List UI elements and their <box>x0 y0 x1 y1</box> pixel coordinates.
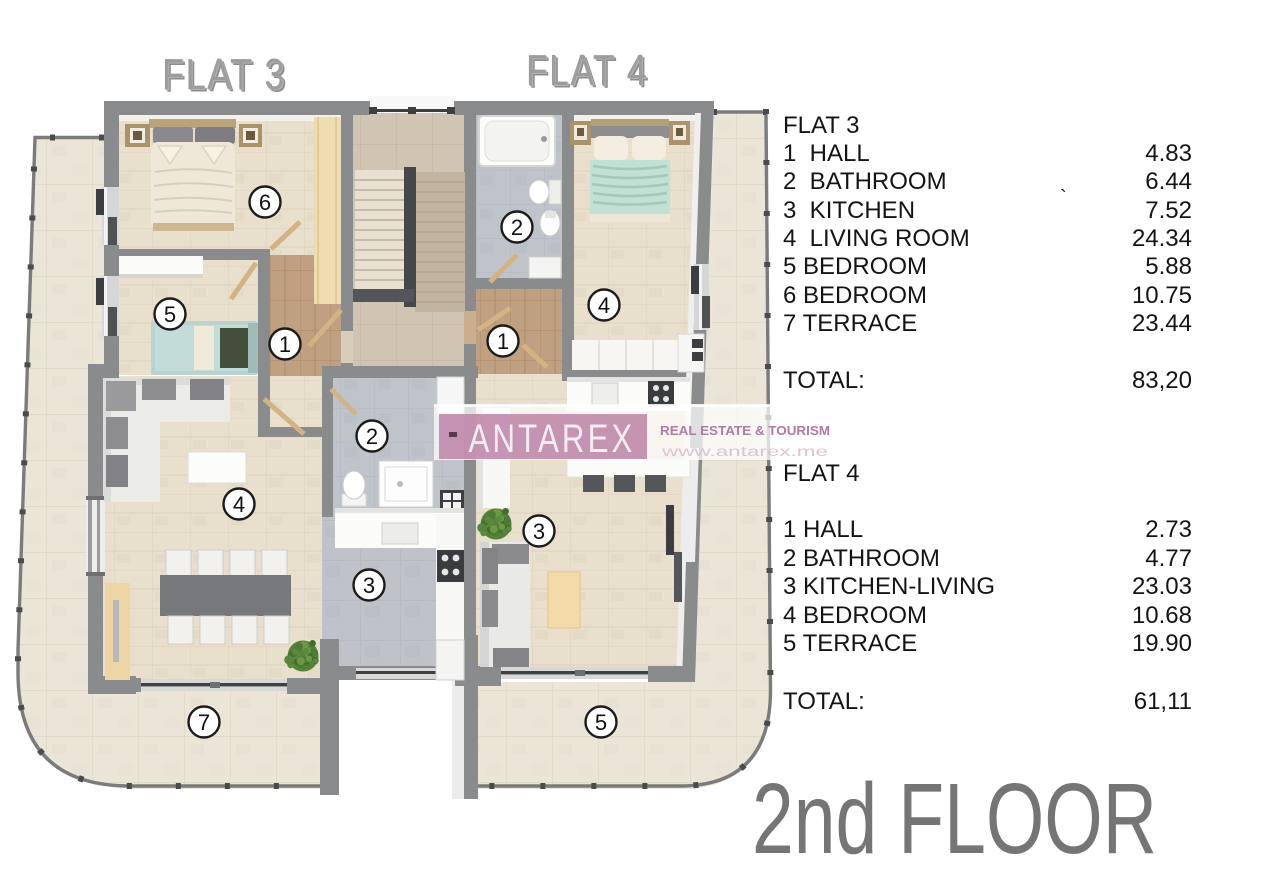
svg-text:23.44: 23.44 <box>1132 310 1192 337</box>
svg-text:4: 4 <box>598 293 610 318</box>
svg-text:`: ` <box>1060 187 1067 209</box>
svg-text:FLAT 4: FLAT 4 <box>526 46 648 95</box>
svg-text:TOTAL:: TOTAL: <box>783 688 865 715</box>
svg-text:2: 2 <box>366 424 378 449</box>
svg-text:4: 4 <box>233 492 245 517</box>
svg-text:1: 1 <box>497 329 509 354</box>
svg-text:1 HALL: 1 HALL <box>783 516 863 543</box>
svg-text:2nd FLOOR: 2nd FLOOR <box>752 763 1157 875</box>
svg-text:7: 7 <box>198 710 210 735</box>
svg-text:24.34: 24.34 <box>1132 225 1192 252</box>
svg-text:ANTAREX: ANTAREX <box>469 417 636 461</box>
svg-text:2 BATHROOM: 2 BATHROOM <box>783 545 940 572</box>
svg-text:6 BEDROOM: 6 BEDROOM <box>783 282 927 309</box>
svg-text:19.90: 19.90 <box>1132 630 1192 657</box>
svg-text:10.68: 10.68 <box>1132 602 1192 629</box>
svg-text:FLAT 3: FLAT 3 <box>783 112 859 139</box>
svg-text:4 LIVING ROOM: 4 LIVING ROOM <box>783 225 970 252</box>
svg-text:4.83: 4.83 <box>1145 140 1192 167</box>
svg-text:5 BEDROOM: 5 BEDROOM <box>783 253 927 280</box>
svg-text:2.73: 2.73 <box>1145 516 1192 543</box>
svg-text:3 KITCHEN-LIVING: 3 KITCHEN-LIVING <box>783 573 995 600</box>
svg-text:FLAT 4: FLAT 4 <box>783 460 859 487</box>
svg-text:REAL ESTATE & TOURISM: REAL ESTATE & TOURISM <box>660 423 830 438</box>
svg-text:4 BEDROOM: 4 BEDROOM <box>783 602 927 629</box>
svg-text:7.52: 7.52 <box>1145 197 1192 224</box>
svg-text:23.03: 23.03 <box>1132 573 1192 600</box>
svg-text:5.88: 5.88 <box>1145 253 1192 280</box>
svg-text:3: 3 <box>533 519 545 544</box>
svg-text:1: 1 <box>279 332 291 357</box>
svg-text:5: 5 <box>595 710 607 735</box>
svg-text:6: 6 <box>259 190 271 215</box>
svg-text:TOTAL:: TOTAL: <box>783 367 865 394</box>
svg-text:83,20: 83,20 <box>1132 367 1192 394</box>
svg-text:1 HALL: 1 HALL <box>783 140 870 167</box>
svg-text:5 TERRACE: 5 TERRACE <box>783 630 917 657</box>
svg-text:FLAT 3: FLAT 3 <box>162 50 286 99</box>
svg-text:61,11: 61,11 <box>1134 688 1192 715</box>
svg-text:www.antarex.me: www.antarex.me <box>660 444 828 459</box>
svg-text:7 TERRACE: 7 TERRACE <box>783 310 917 337</box>
svg-text:10.75: 10.75 <box>1132 282 1192 309</box>
svg-text:2: 2 <box>511 215 523 240</box>
svg-text:3: 3 <box>363 573 375 598</box>
svg-text:6.44: 6.44 <box>1145 168 1192 195</box>
svg-text:3 KITCHEN: 3 KITCHEN <box>783 197 915 224</box>
svg-text:4.77: 4.77 <box>1145 545 1192 572</box>
svg-text:5: 5 <box>164 302 176 327</box>
svg-text:2 BATHROOM: 2 BATHROOM <box>783 168 947 195</box>
